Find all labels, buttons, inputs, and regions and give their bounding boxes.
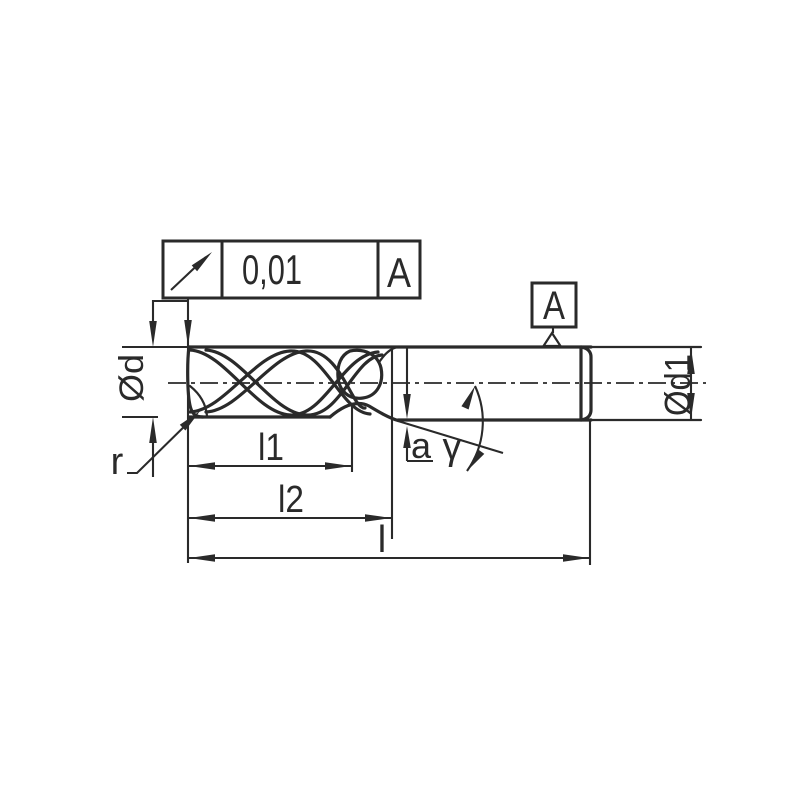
cutting-diameter-dimension: Ød [113,300,188,477]
od-arrow-down [149,321,157,347]
circular-runout-arrow-icon [171,252,212,290]
overall-length-label: l [378,519,386,561]
datum-triangle-icon [544,333,561,346]
l2-arrow-left [189,514,215,522]
corner-radius-label: r [111,441,124,483]
flute-length-label: l1 [258,427,284,469]
length-to-neck-label: l2 [278,479,304,521]
end-mill-dimension-drawing: 0,01 A A γ [0,0,800,800]
neck-offset-dimension: a [403,347,433,466]
corner-radius-dimension: r [111,411,200,483]
technical-drawing-page: 0,01 A A γ [0,0,800,800]
l-arrow-left [189,554,215,562]
tip-end-face [188,347,203,417]
tolerance-value: 0,01 [242,246,302,293]
neck-offset-label: a [411,425,432,466]
datum-flag-letter: A [543,284,565,328]
tolerance-datum-letter: A [387,249,411,296]
od-dimension-line [153,300,188,477]
flute-length-dimension: l1 [189,427,351,470]
datum-flag: A [532,283,576,346]
extension-lines [188,298,590,565]
runout-tolerance-frame: 0,01 A [163,241,420,346]
shank-diameter-dimension: Ød1 [657,347,698,420]
cutting-diameter-label: Ød [113,354,151,402]
od-arrow-up [149,417,157,443]
shank-diameter-label: Ød1 [657,354,698,416]
length-to-neck-dimension: l2 [189,479,391,522]
a-arrow-up [403,426,411,448]
overall-length-dimension: l [189,519,589,562]
gamma-arc-arrow-top [461,386,475,410]
neck-angle-label: γ [443,426,462,468]
r-leader-arrow [180,411,200,431]
gamma-arc-arrow-bottom [467,449,484,471]
l1-arrow-right [325,462,351,470]
l1-arrow-left [189,462,215,470]
a-arrow-down [403,394,411,419]
l-arrow-right [563,554,589,562]
